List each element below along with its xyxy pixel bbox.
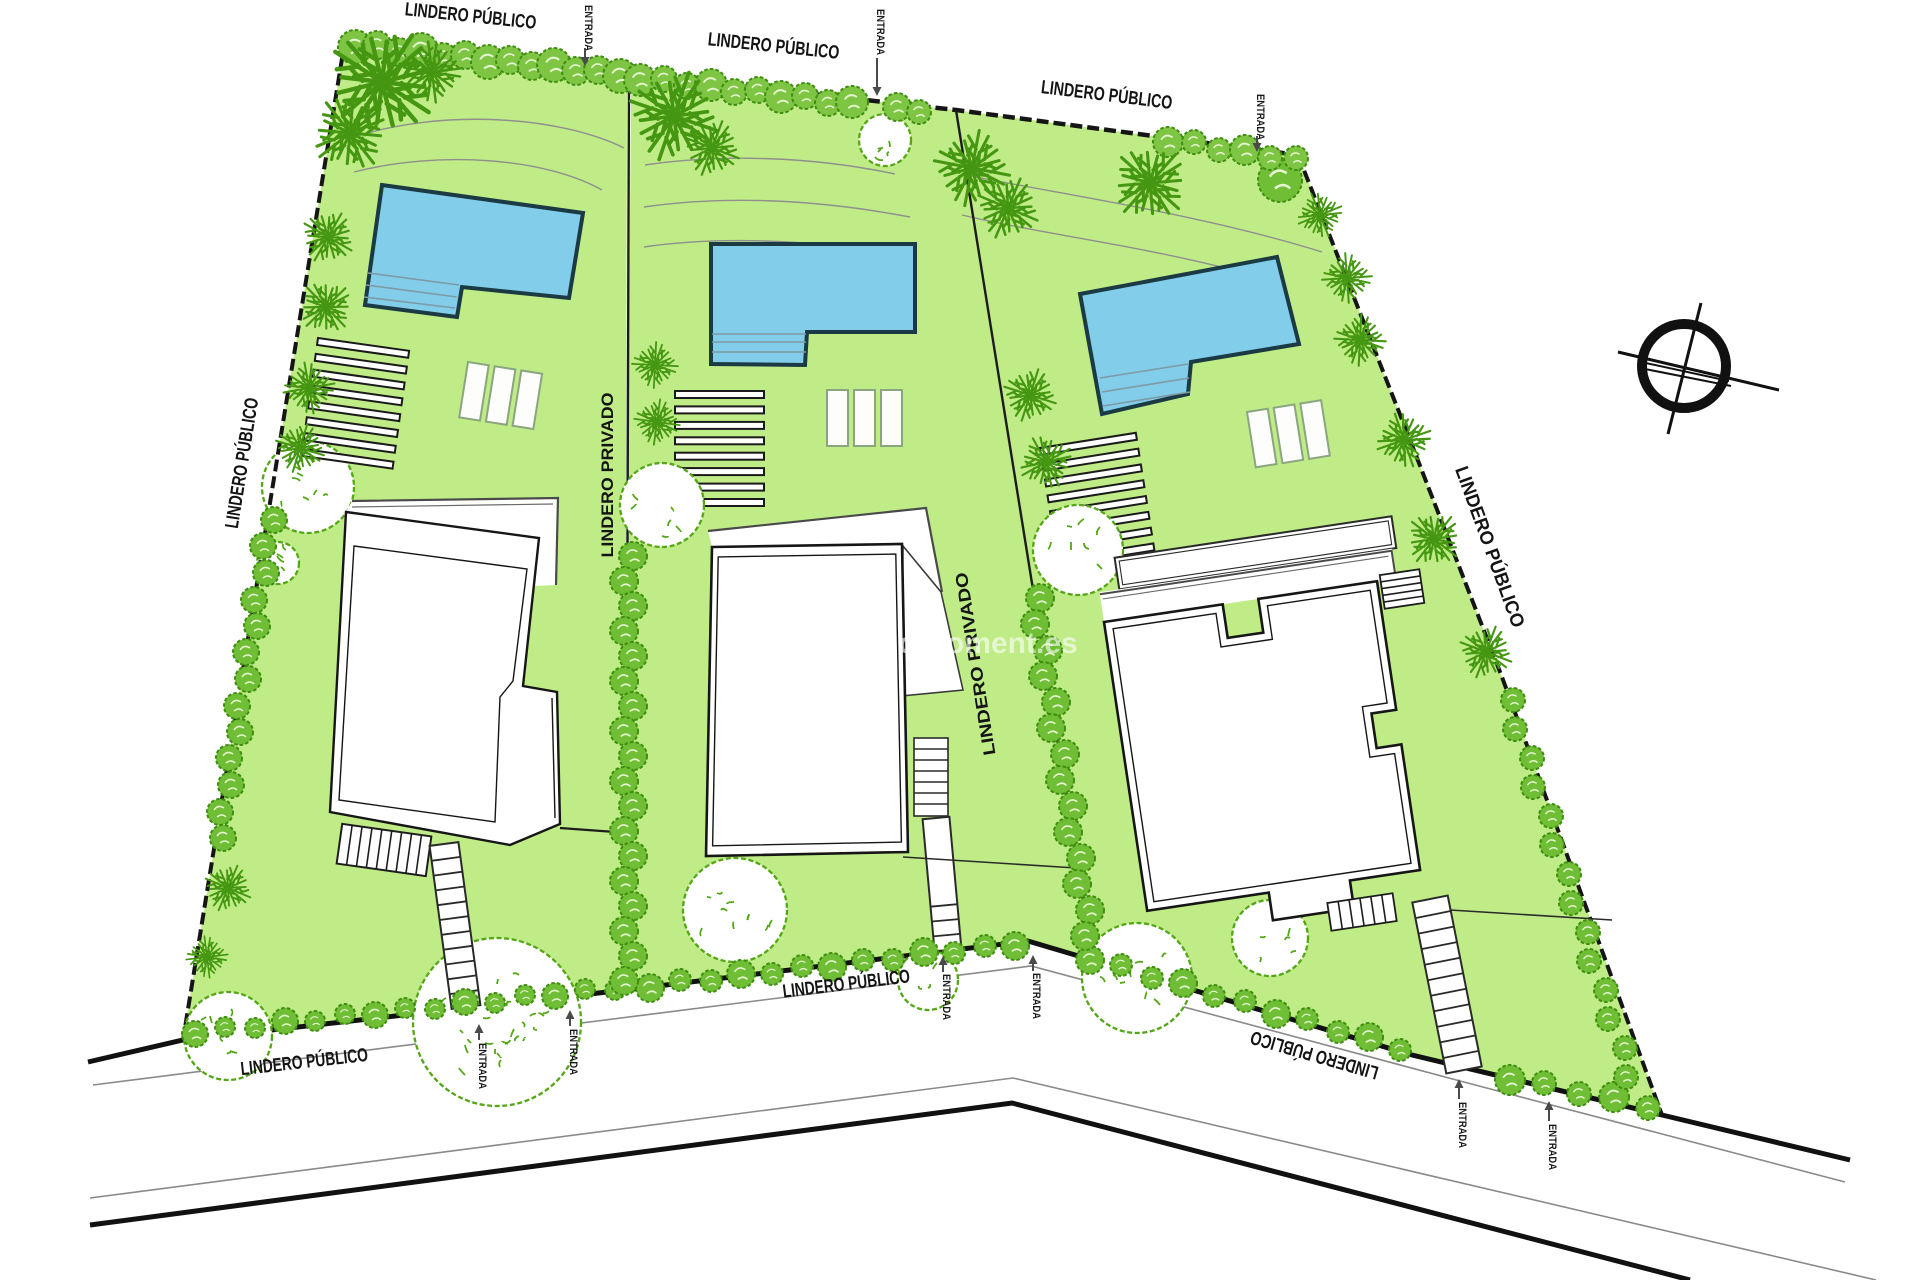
svg-text:ENTRADA: ENTRADA bbox=[476, 1043, 488, 1089]
svg-text:ENTRADA: ENTRADA bbox=[940, 974, 952, 1020]
svg-text:nc: nc bbox=[880, 627, 915, 660]
svg-text:ENTRADA: ENTRADA bbox=[567, 1029, 579, 1075]
svg-text:oment.es: oment.es bbox=[946, 627, 1078, 660]
svg-text:ENTRADA: ENTRADA bbox=[1546, 1124, 1558, 1170]
svg-text:ENTRADA: ENTRADA bbox=[874, 9, 886, 55]
svg-text:ENTRADA: ENTRADA bbox=[582, 5, 594, 51]
svg-text:ENTRADA: ENTRADA bbox=[1254, 94, 1266, 140]
svg-text:LINDERO PRIVADO: LINDERO PRIVADO bbox=[598, 393, 617, 558]
svg-text:ENTRADA: ENTRADA bbox=[1456, 1102, 1468, 1148]
svg-text:ENTRADA: ENTRADA bbox=[1030, 973, 1042, 1019]
